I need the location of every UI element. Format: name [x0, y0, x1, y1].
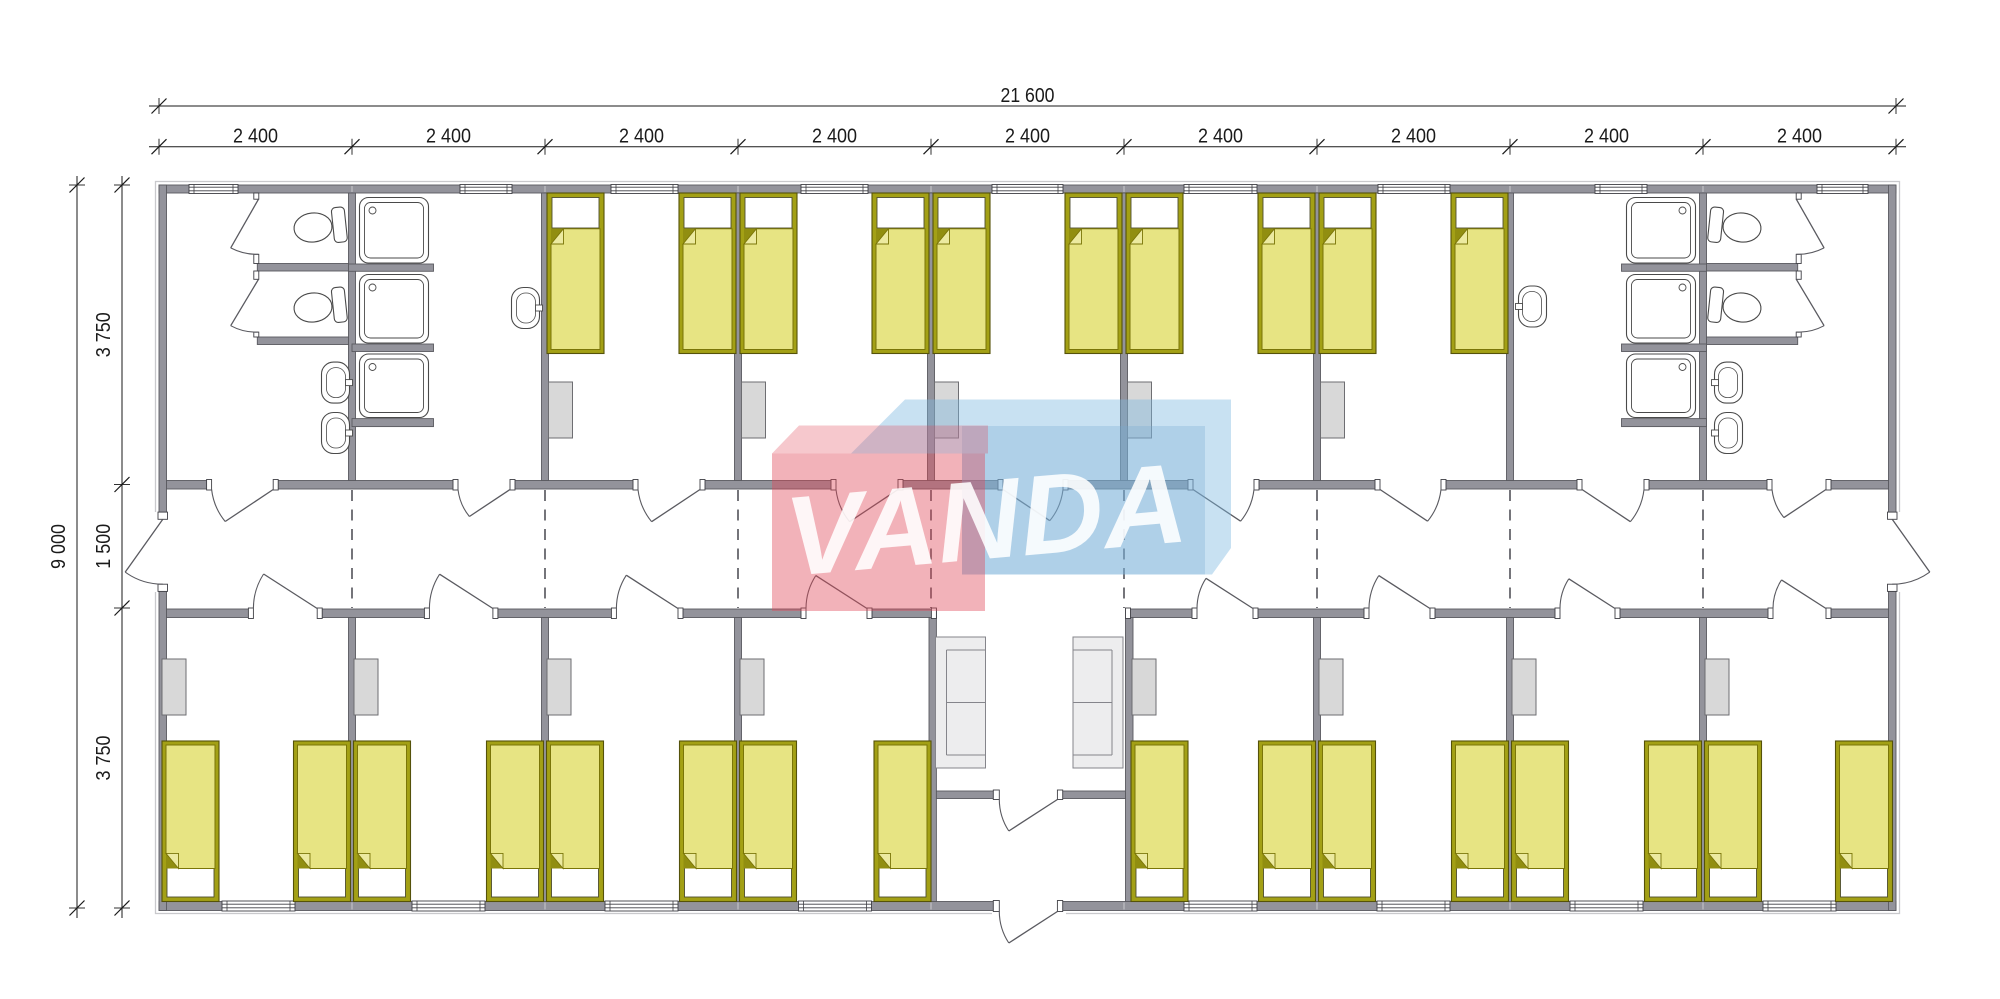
svg-text:9 000: 9 000	[47, 524, 70, 569]
svg-text:2 400: 2 400	[1777, 125, 1822, 148]
svg-text:2 400: 2 400	[233, 125, 278, 148]
svg-text:2 400: 2 400	[619, 125, 664, 148]
svg-text:1 500: 1 500	[92, 524, 115, 569]
svg-text:21 600: 21 600	[1001, 84, 1055, 107]
svg-text:2 400: 2 400	[1391, 125, 1436, 148]
svg-text:2 400: 2 400	[426, 125, 471, 148]
svg-text:2 400: 2 400	[1198, 125, 1243, 148]
svg-text:2 400: 2 400	[1584, 125, 1629, 148]
svg-text:3 750: 3 750	[92, 312, 115, 357]
svg-text:3 750: 3 750	[92, 736, 115, 781]
svg-text:2 400: 2 400	[812, 125, 857, 148]
svg-text:2 400: 2 400	[1005, 125, 1050, 148]
